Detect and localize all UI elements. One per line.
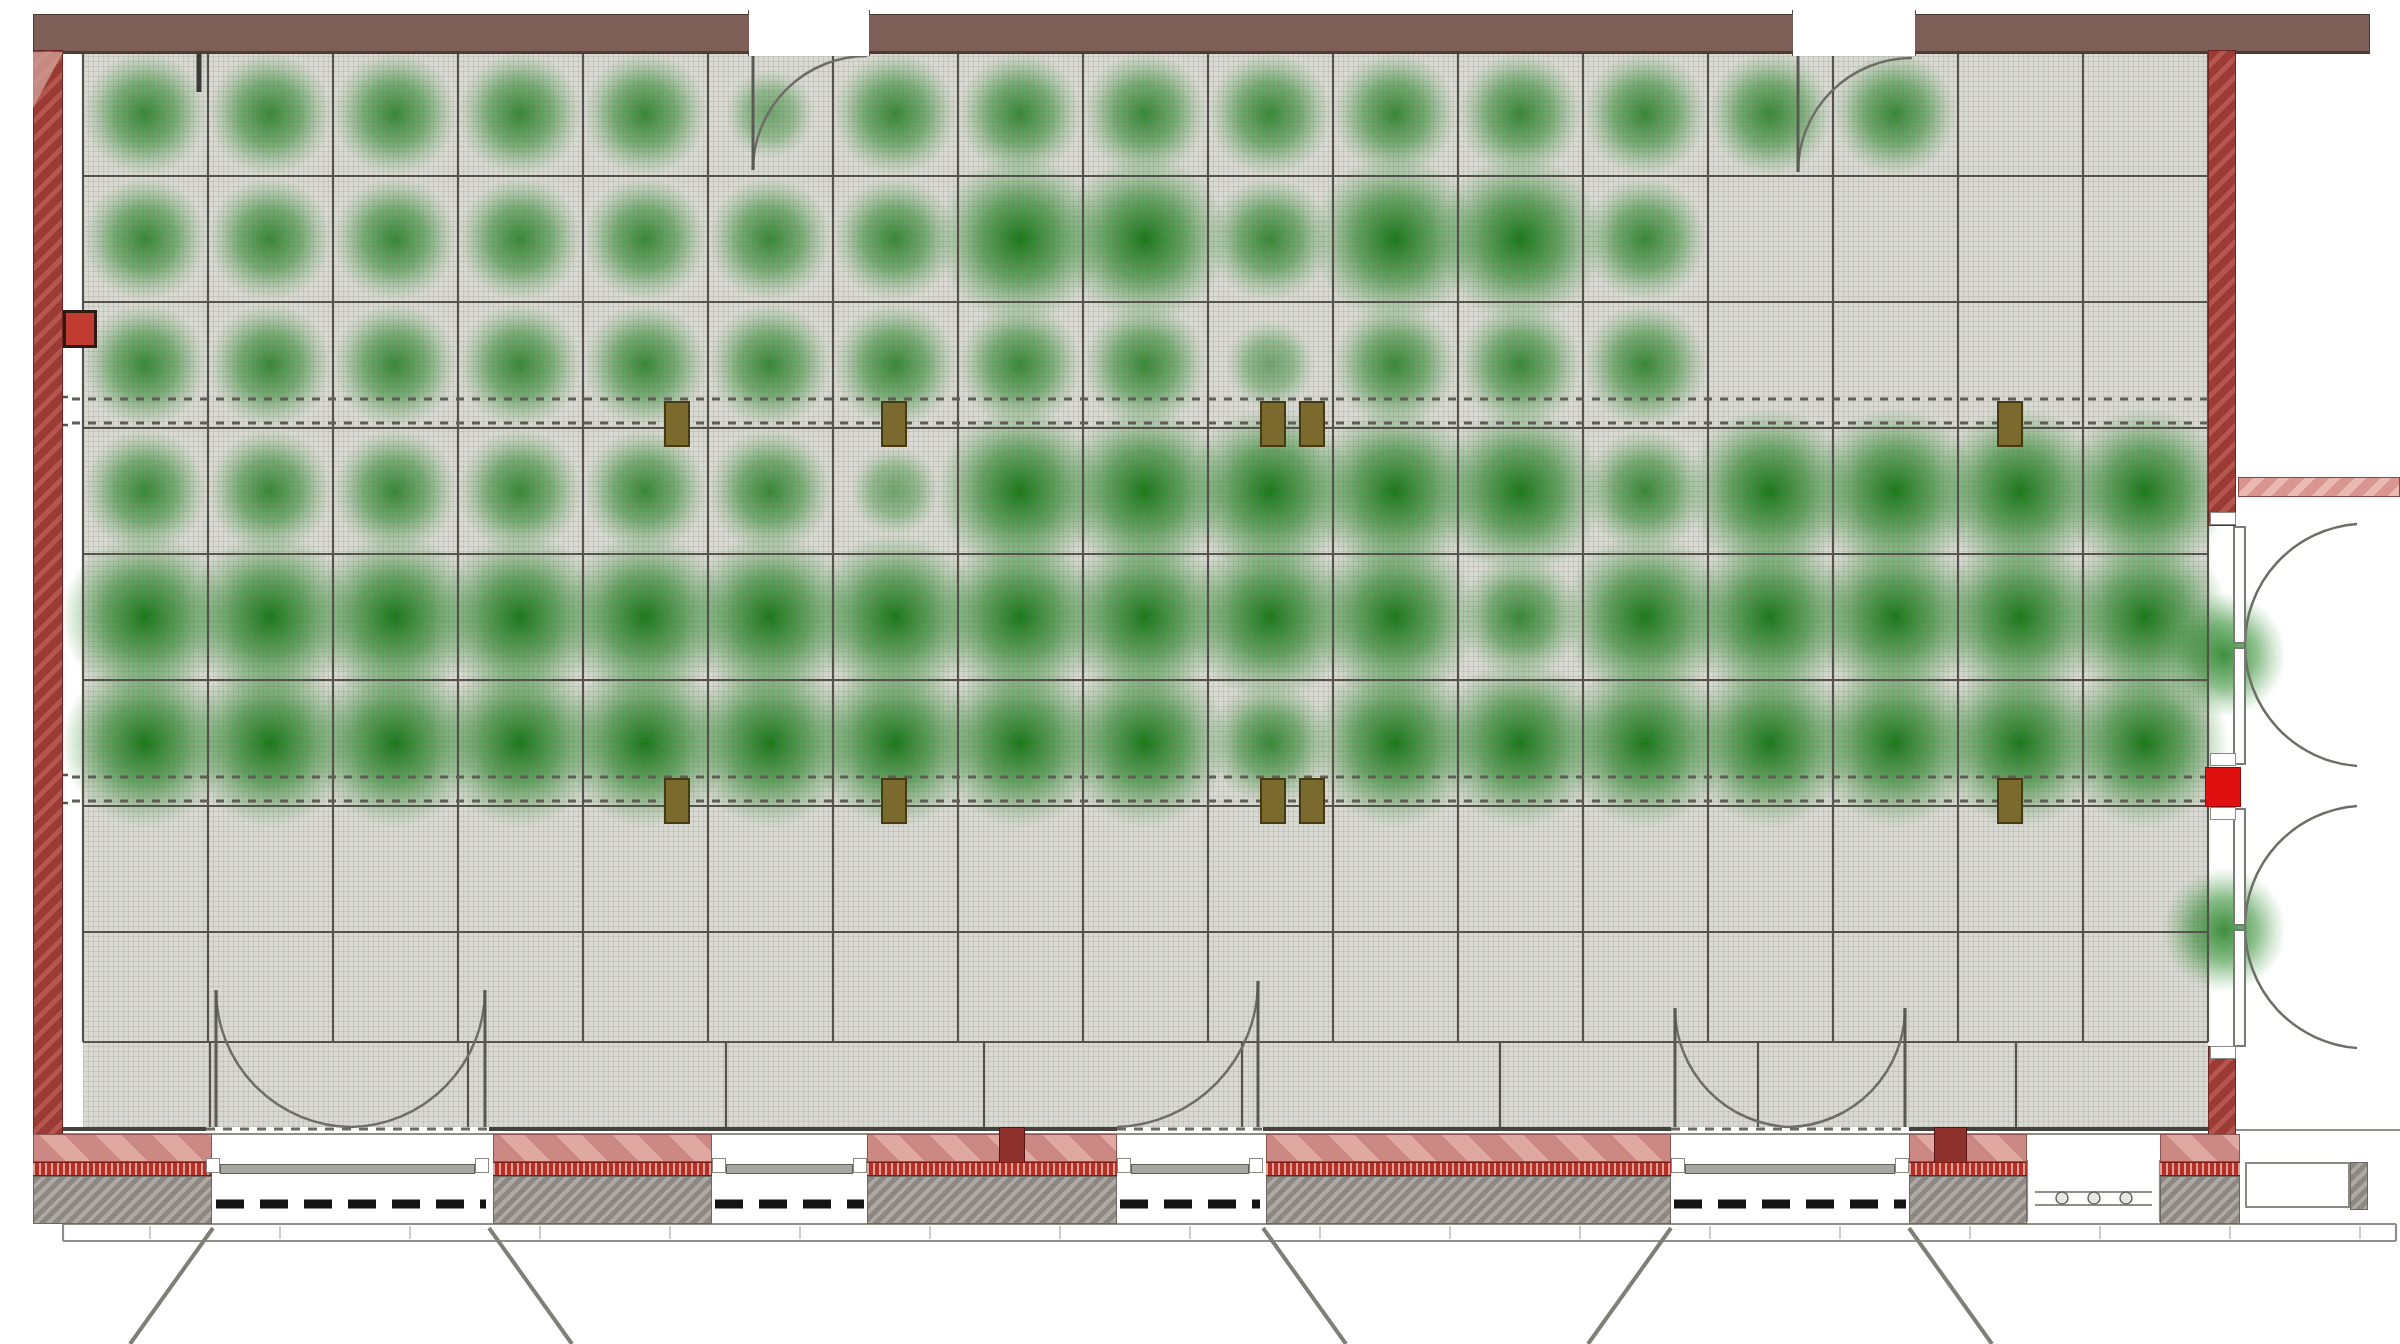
door-sill	[220, 1164, 475, 1174]
window-pivot-circle	[2056, 1192, 2132, 1204]
equipment-marker	[881, 401, 907, 447]
right-pink-ledge	[2238, 477, 2400, 497]
window-panel-5	[1909, 1134, 2027, 1162]
equipment-marker	[1299, 401, 1325, 447]
red-strip-2	[493, 1162, 712, 1176]
floor-plan	[0, 0, 2400, 1344]
door-jamb	[206, 1158, 220, 1173]
door-jamb	[2210, 1046, 2236, 1059]
window-panel-2	[493, 1134, 712, 1162]
right-wall-upper	[2208, 50, 2236, 526]
plan-linework	[0, 0, 2400, 1344]
mullion-2	[1934, 1127, 1967, 1163]
window-panel-3	[867, 1134, 1117, 1162]
threshold-lines	[63, 1130, 2400, 1241]
door-jamb	[1249, 1158, 1263, 1173]
outlet-box	[63, 310, 97, 348]
masonry-pier-6	[2160, 1176, 2240, 1224]
right-wall-red-block	[2205, 767, 2241, 807]
red-strip-6	[2160, 1162, 2240, 1176]
masonry-pier-1	[33, 1176, 212, 1224]
equipment-marker	[664, 778, 690, 824]
door-swing-arc	[216, 56, 2357, 1127]
masonry-pier-5	[1909, 1176, 2027, 1224]
equipment-marker	[1997, 778, 2023, 824]
door-sill	[1131, 1164, 1249, 1174]
expansion-joint-dashed-line	[72, 399, 2212, 801]
door-jamb	[2210, 512, 2236, 525]
door-jamb	[712, 1158, 726, 1173]
red-strip-1	[33, 1162, 212, 1176]
masonry-pier-4	[1266, 1176, 1671, 1224]
top-door-gap-1	[749, 10, 869, 56]
red-strip-3	[867, 1162, 1117, 1176]
equipment-marker	[1299, 778, 1325, 824]
door-leaf-east	[2233, 526, 2246, 644]
door-jamb	[1117, 1158, 1131, 1173]
equipment-marker	[1997, 401, 2023, 447]
masonry-pier-east	[2350, 1162, 2368, 1210]
top-door-gap-2	[1793, 10, 1915, 56]
door-leaf-east	[2233, 929, 2246, 1047]
window-panel-6	[2160, 1134, 2240, 1162]
left-wall	[33, 50, 63, 1136]
door-sill	[726, 1164, 853, 1174]
threshold-ticks	[150, 1226, 2360, 1239]
masonry-pier-3	[867, 1176, 1117, 1224]
tile-grid-lines	[83, 52, 2208, 1127]
equipment-marker	[881, 778, 907, 824]
top-wall	[33, 14, 2370, 54]
red-strip-4	[1266, 1162, 1671, 1176]
door-jamb	[2210, 753, 2236, 766]
red-strip-5	[1909, 1162, 2027, 1176]
door-leaf-east	[2233, 647, 2246, 765]
open-door-leaf-diagonal	[130, 1228, 1992, 1344]
door-leaf-line	[216, 56, 1905, 1127]
door-jamb	[475, 1158, 489, 1173]
window-frame-east	[2245, 1162, 2350, 1208]
masonry-pier-2	[493, 1176, 712, 1224]
door-jamb	[853, 1158, 867, 1173]
door-sill	[1685, 1164, 1895, 1174]
equipment-marker	[664, 401, 690, 447]
equipment-marker	[1260, 778, 1286, 824]
right-wall-lower	[2208, 1046, 2236, 1138]
equipment-marker	[1260, 401, 1286, 447]
window-panel-4	[1266, 1134, 1671, 1162]
door-jamb	[1895, 1158, 1909, 1173]
door-jamb	[2210, 807, 2236, 820]
window-panel-1	[33, 1134, 212, 1162]
door-jamb	[1671, 1158, 1685, 1173]
door-leaf-east	[2233, 808, 2246, 926]
mullion-1	[999, 1127, 1025, 1163]
